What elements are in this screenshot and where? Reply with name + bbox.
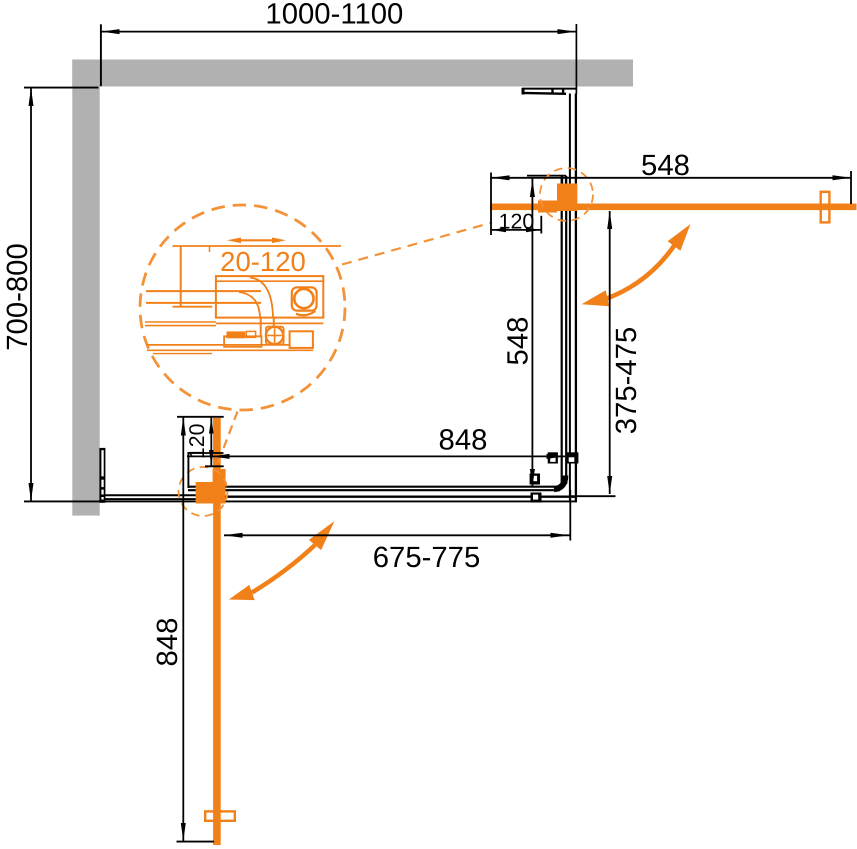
svg-text:675-775: 675-775 — [373, 541, 481, 574]
svg-text:120: 120 — [185, 423, 209, 459]
svg-text:848: 848 — [151, 618, 184, 667]
svg-text:848: 848 — [439, 424, 488, 457]
svg-text:548: 548 — [502, 317, 535, 366]
svg-text:375-475: 375-475 — [610, 327, 643, 435]
svg-text:700-800: 700-800 — [1, 243, 34, 351]
svg-text:20-120: 20-120 — [220, 246, 306, 277]
svg-text:120: 120 — [499, 209, 535, 233]
svg-text:1000-1100: 1000-1100 — [265, 0, 403, 31]
svg-text:548: 548 — [641, 149, 690, 182]
